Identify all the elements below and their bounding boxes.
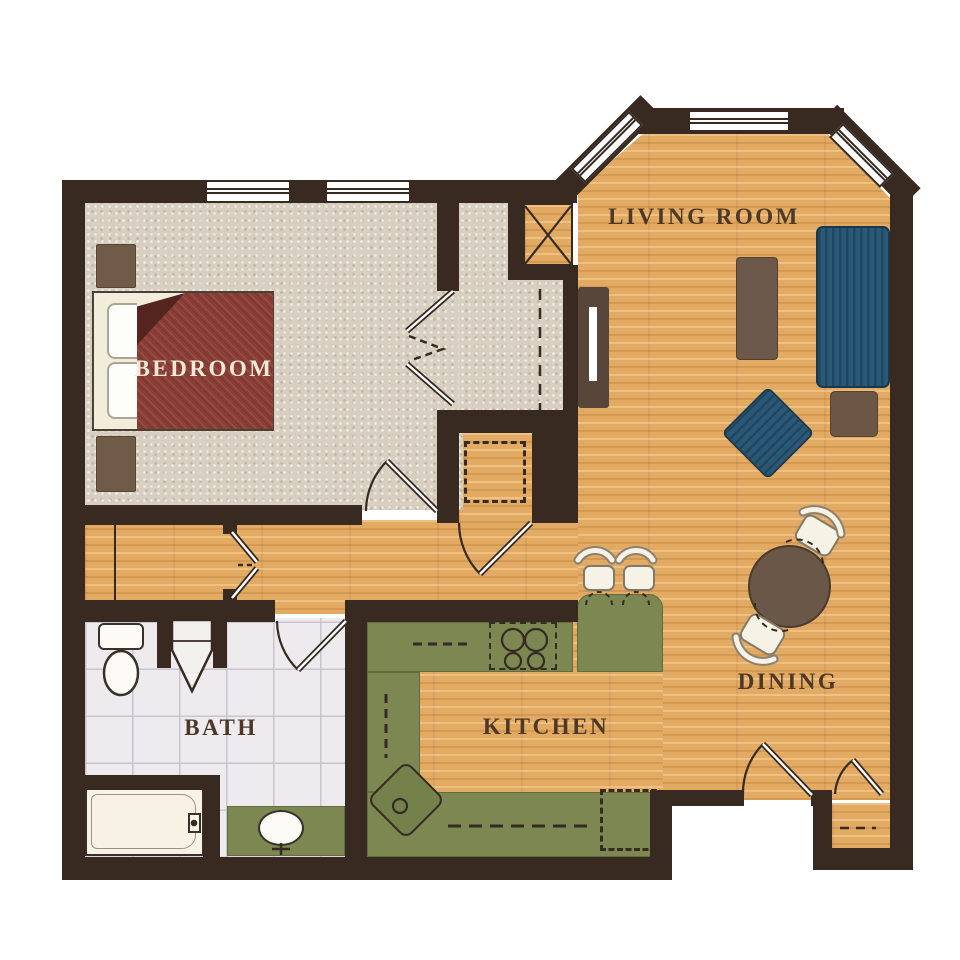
alcove-door-arc xyxy=(459,523,480,574)
kitchen-label: KITCHEN xyxy=(483,714,609,740)
bath-label: BATH xyxy=(184,715,257,741)
floorplan-linework xyxy=(0,0,960,960)
chair-backs xyxy=(578,510,841,662)
bath-door-arc xyxy=(277,621,298,670)
sink-drain-icon xyxy=(393,799,407,813)
bedroom-door-arc xyxy=(366,461,387,511)
peninsula-seat-arc xyxy=(586,592,612,605)
mech-closet-x-icon xyxy=(525,206,571,264)
dining-chair-tuck-arc xyxy=(786,540,823,568)
peninsula-seat-arc xyxy=(623,592,649,605)
living-room-label: LIVING ROOM xyxy=(608,204,800,230)
stove-burners-icon xyxy=(502,629,547,669)
bedroom-label: BEDROOM xyxy=(135,356,274,382)
entry-door-arc xyxy=(743,744,763,795)
toilet-bowl-icon xyxy=(104,651,138,695)
vanity-faucet-icon xyxy=(272,843,290,855)
pedestal-sink-icon xyxy=(172,620,212,691)
entry-closet-door-arc xyxy=(835,760,853,794)
floor-plan: BEDROOM LIVING ROOM BATH KITCHEN DINING xyxy=(0,0,960,960)
dining-label: DINING xyxy=(738,669,839,695)
bifold-door-dashes xyxy=(409,336,443,361)
tub-drain-icon xyxy=(192,821,196,825)
dining-chair-tuck-arc xyxy=(755,603,791,631)
